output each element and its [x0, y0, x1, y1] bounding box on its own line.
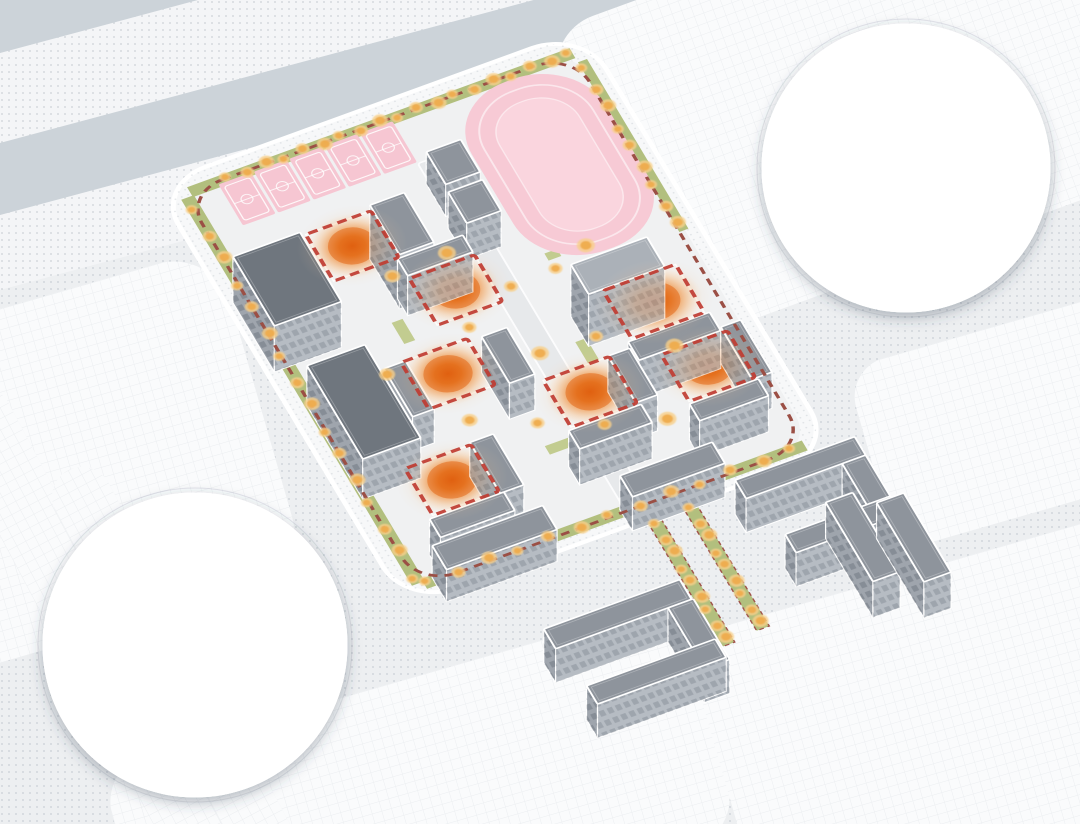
masterplan-scene — [0, 0, 1080, 824]
masterplan-canvas — [0, 0, 1080, 824]
